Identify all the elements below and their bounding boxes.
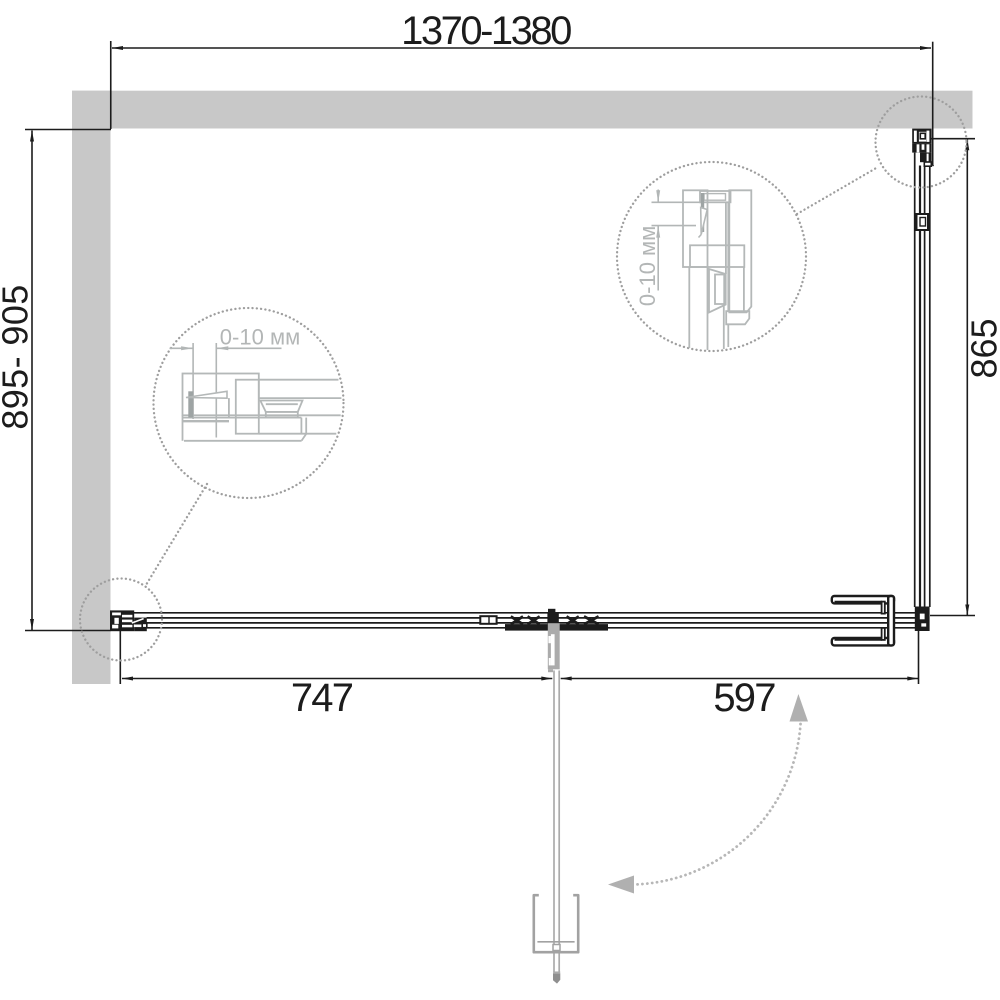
svg-text:865: 865 [964, 318, 1000, 378]
svg-text:895- 905: 895- 905 [0, 284, 36, 429]
svg-text:597: 597 [713, 676, 775, 720]
svg-text:0-10 мм: 0-10 мм [220, 325, 300, 350]
svg-text:0-10 мм: 0-10 мм [635, 226, 660, 306]
svg-text:747: 747 [291, 676, 353, 720]
svg-text:1370-1380: 1370-1380 [401, 9, 571, 53]
